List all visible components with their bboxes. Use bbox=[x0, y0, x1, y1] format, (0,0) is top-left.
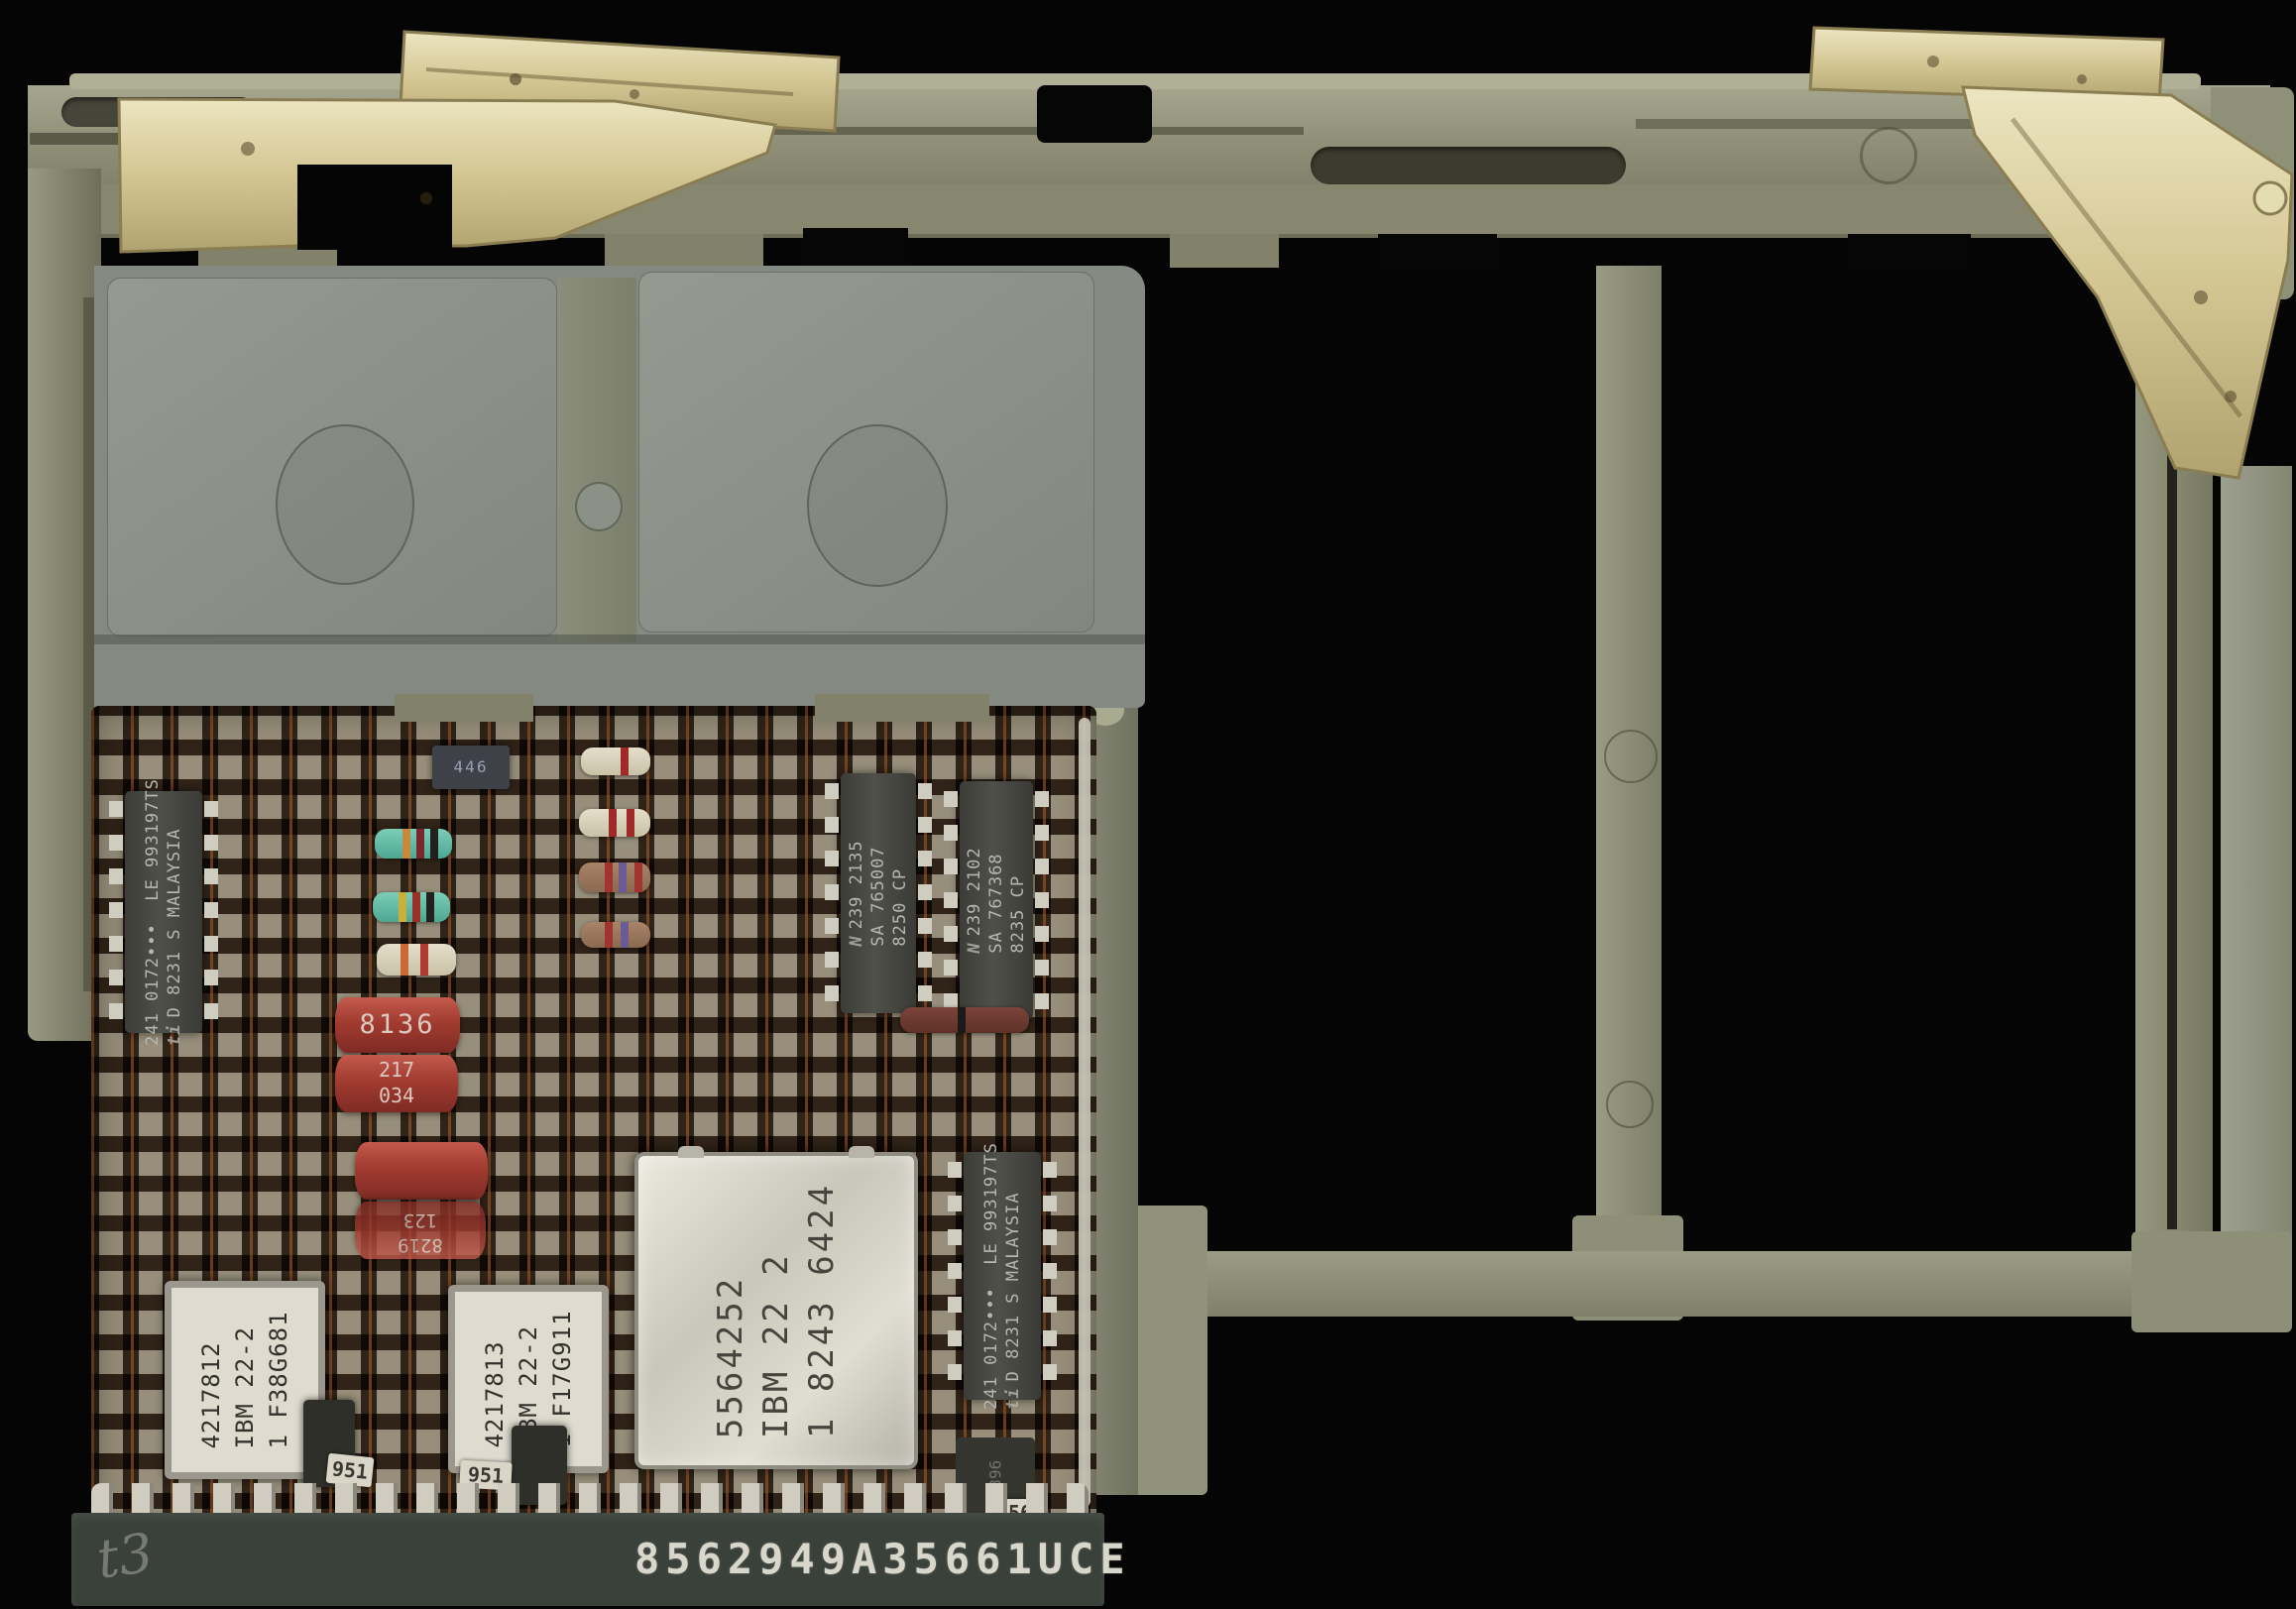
brass-clip-right bbox=[1810, 28, 2292, 478]
brass-clips bbox=[0, 0, 2296, 1609]
photo-ibm-circuit-card: 241 0172••• LE 993197TS tiD 8231 S MALAY… bbox=[0, 0, 2296, 1609]
brass-clip-left bbox=[119, 32, 839, 252]
